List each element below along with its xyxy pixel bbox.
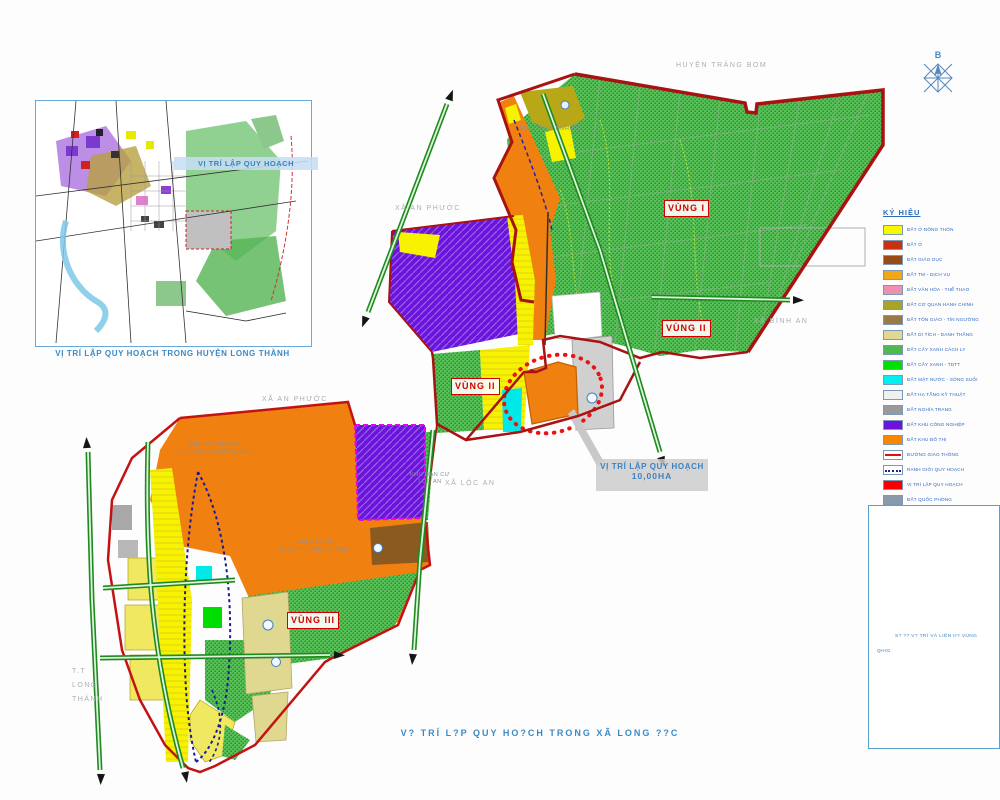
- legend-item: ĐẤT MẶT NƯỚC - SÔNG SUỐI: [883, 372, 998, 387]
- label-xa-an-phuoc-top: XÃ AN PHƯỚC: [395, 205, 461, 212]
- legend-label: ĐẤT Ở: [907, 242, 922, 247]
- label-khu-cong-nghiep: KHU CÔNG NGHIỆP: [520, 126, 580, 133]
- legend-swatch: [883, 345, 903, 355]
- legend-item: ĐẤT KHU CÔNG NGHIỆP: [883, 417, 998, 432]
- label-tt-long-thanh: T.T LONG THÀNH: [72, 668, 104, 703]
- kdc-loc-an-line1: KHU DÂN CƯ: [395, 472, 465, 479]
- legend-label: ĐẤT TM - DỊCH VỤ: [907, 272, 950, 277]
- legend-label: ĐẤT KHU ĐÔ THỊ: [907, 437, 947, 442]
- legend-swatch: [883, 375, 903, 385]
- inset-location-map: VỊ TRÍ LẬP QUY HOẠCH: [35, 100, 312, 347]
- inset-title-band: VỊ TRÍ LẬP QUY HOẠCH: [174, 157, 318, 170]
- legend-label: ĐẤT CƠ QUAN HÀNH CHÍNH: [907, 302, 974, 307]
- legend-label: ĐẤT CÂY XANH - TDTT: [907, 362, 960, 367]
- legend-item: ĐẤT HẠ TẦNG KỸ THUẬT: [883, 387, 998, 402]
- label-kdc-2: KHU DÂN CƯ (CTY CP LONG THÀNH): [275, 540, 355, 554]
- site-callout-line2: 10,00HA: [596, 471, 708, 481]
- legend-swatch: [883, 300, 903, 310]
- legend-label: ĐẤT NGHĨA TRANG: [907, 407, 952, 412]
- legend-item: VỊ TRÍ LẬP QUY HOẠCH: [883, 477, 998, 492]
- legend-item: ĐƯỜNG GIAO THÔNG: [883, 447, 998, 462]
- label-tt-line1: T.T: [72, 668, 104, 675]
- legend-label: ĐẤT CÂY XANH CÁCH LY: [907, 347, 966, 352]
- legend-item: ĐẤT Ở: [883, 237, 998, 252]
- kdc-2-line2: (CTY CP LONG THÀNH): [275, 547, 355, 554]
- kdc-loc-an-line2: LỘC AN: [395, 479, 465, 486]
- legend-item: ĐẤT CƠ QUAN HÀNH CHÍNH: [883, 297, 998, 312]
- legend-swatch: [883, 435, 903, 445]
- sheet-title-line1: S? ?? V? TRÍ VÀ LIÊN H? VÙNG: [895, 634, 995, 639]
- legend-swatch: [883, 465, 903, 475]
- legend-item: ĐẤT KHU ĐÔ THỊ: [883, 432, 998, 447]
- legend-label: ĐẤT MẶT NƯỚC - SÔNG SUỐI: [907, 377, 978, 382]
- legend-item: ĐẤT VĂN HÓA - THỂ THAO: [883, 282, 998, 297]
- label-xa-an-phuoc-mid: XÃ AN PHƯỚC: [262, 396, 328, 403]
- label-tt-line2: LONG: [72, 682, 104, 689]
- planning-map-page: VỊ TRÍ LẬP QUY HOẠCH VỊ TRÍ LẬP QUY HOẠC…: [0, 0, 1000, 800]
- legend-swatch: [883, 330, 903, 340]
- legend-swatch: [883, 360, 903, 370]
- legend-item: ĐẤT Ở NÔNG THÔN: [883, 222, 998, 237]
- zone-label-vung-2-east: VÙNG II: [662, 320, 711, 337]
- label-kdc-loc-an: KHU DÂN CƯ LỘC AN: [395, 472, 465, 486]
- sheet-title-box: S? ?? V? TRÍ VÀ LIÊN H? VÙNG QH-01: [868, 505, 1000, 749]
- legend-swatch: [883, 255, 903, 265]
- sheet-number: QH-01: [877, 648, 890, 653]
- legend-label: ĐẤT QUỐC PHÒNG: [907, 497, 952, 502]
- legend-swatch: [883, 450, 903, 460]
- label-khu-do-thi-moi: KHU ĐÔ THỊ MỚI (CTY CAO SU ĐỒNG NAI): [160, 442, 270, 456]
- legend-label: ĐẤT HẠ TẦNG KỸ THUẬT: [907, 392, 966, 397]
- boundary-dotted-icon: [885, 470, 901, 472]
- legend-label: ĐẤT KHU CÔNG NGHIỆP: [907, 422, 965, 427]
- label-xa-binh-an: XÃ BÌNH AN: [754, 318, 808, 325]
- legend-item: ĐẤT CÂY XANH CÁCH LY: [883, 342, 998, 357]
- zone-label-vung-3: VÙNG III: [287, 612, 339, 629]
- khu-do-thi-line1: KHU ĐÔ THỊ MỚI: [160, 442, 270, 449]
- inset-caption: VỊ TRÍ LẬP QUY HOẠCH TRONG HUYỆN LONG TH…: [35, 349, 310, 358]
- khu-do-thi-line2: (CTY CAO SU ĐỒNG NAI): [160, 449, 270, 456]
- legend-swatch: [883, 240, 903, 250]
- legend-swatch: [883, 285, 903, 295]
- legend-item: ĐẤT CÂY XANH - TDTT: [883, 357, 998, 372]
- north-label: B: [916, 50, 960, 60]
- legend-item: ĐẤT TÔN GIÁO - TÍN NGƯỠNG: [883, 312, 998, 327]
- legend-item: ĐẤT DI TÍCH - DANH THẮNG: [883, 327, 998, 342]
- legend-swatch: [883, 495, 903, 505]
- legend-swatch: [883, 315, 903, 325]
- kdc-2-line1: KHU DÂN CƯ: [275, 540, 355, 547]
- legend-swatch: [883, 225, 903, 235]
- legend-swatch: [883, 270, 903, 280]
- legend-label: ĐẤT DI TÍCH - DANH THẮNG: [907, 332, 973, 337]
- bottom-caption: V? TRÍ L?P QUY HO?CH TRONG XÃ LONG ??C: [340, 728, 740, 738]
- legend: KÝ HIỆU ĐẤT Ở NÔNG THÔNĐẤT ỞĐẤT GIÁO DỤC…: [883, 208, 998, 507]
- north-arrow: B: [916, 50, 960, 102]
- zone-label-vung-1: VÙNG I: [664, 200, 709, 217]
- legend-swatch: [883, 390, 903, 400]
- legend-items: ĐẤT Ở NÔNG THÔNĐẤT ỞĐẤT GIÁO DỤCĐẤT TM -…: [883, 222, 998, 507]
- site-callout-line1: VỊ TRÍ LẬP QUY HOẠCH: [596, 462, 708, 471]
- legend-item: ĐẤT NGHĨA TRANG: [883, 402, 998, 417]
- inset-map-graphic: [36, 101, 308, 343]
- legend-label: ĐẤT Ở NÔNG THÔN: [907, 227, 954, 232]
- legend-label: ĐẤT GIÁO DỤC: [907, 257, 943, 262]
- legend-item: ĐẤT TM - DỊCH VỤ: [883, 267, 998, 282]
- legend-item: ĐẤT GIÁO DỤC: [883, 252, 998, 267]
- road-line-icon: [885, 454, 901, 456]
- label-tt-line3: THÀNH: [72, 696, 104, 703]
- legend-swatch: [883, 405, 903, 415]
- zone-label-vung-2-west: VÙNG II: [451, 378, 500, 395]
- legend-header: KÝ HIỆU: [883, 208, 998, 217]
- site-callout: VỊ TRÍ LẬP QUY HOẠCH 10,00HA: [596, 459, 708, 491]
- legend-label: VỊ TRÍ LẬP QUY HOẠCH: [907, 482, 963, 487]
- legend-label: ĐẤT TÔN GIÁO - TÍN NGƯỠNG: [907, 317, 979, 322]
- legend-label: ĐẤT VĂN HÓA - THỂ THAO: [907, 287, 969, 292]
- legend-item: RANH GIỚI QUY HOẠCH: [883, 462, 998, 477]
- legend-swatch: [883, 480, 903, 490]
- label-huyen-trang-bom: HUYỆN TRẢNG BOM: [676, 62, 767, 69]
- compass-icon: [916, 60, 960, 96]
- legend-label: RANH GIỚI QUY HOẠCH: [907, 467, 964, 472]
- legend-swatch: [883, 420, 903, 430]
- legend-label: ĐƯỜNG GIAO THÔNG: [907, 452, 959, 457]
